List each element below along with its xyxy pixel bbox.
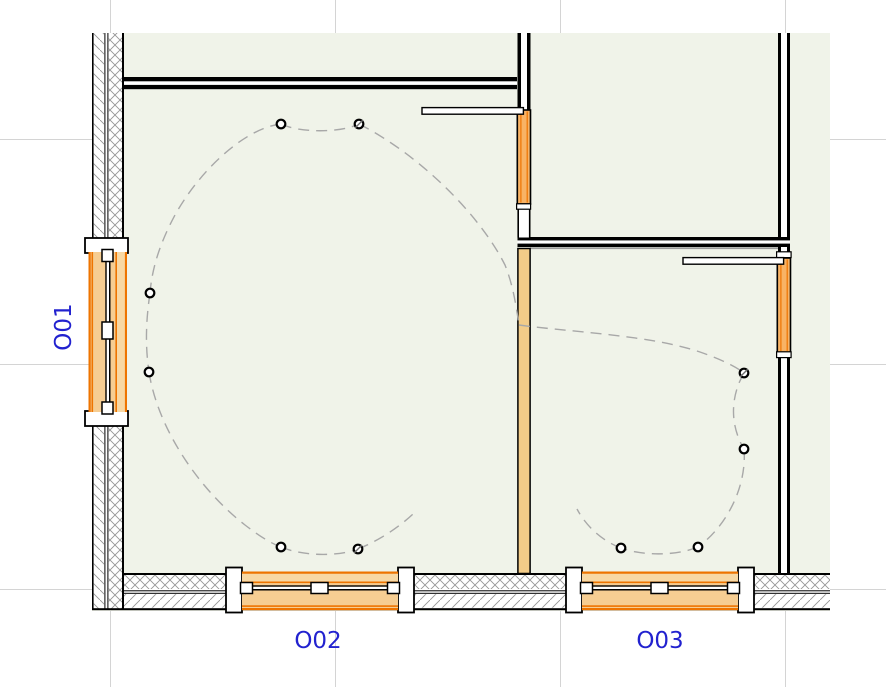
window-frame-handle (388, 583, 400, 594)
window-frame-handle (102, 250, 113, 262)
sliding-door-east[interactable] (777, 252, 792, 358)
window-frame-handle (651, 583, 668, 594)
light-fixture[interactable] (617, 544, 626, 553)
light-fixture[interactable] (277, 120, 286, 129)
sliding-door-north[interactable] (517, 110, 531, 209)
window-o03[interactable] (566, 568, 754, 613)
window-label-o02[interactable]: O02 (294, 628, 341, 654)
wall-east-upper[interactable] (778, 33, 790, 252)
window-label-o01[interactable]: O01 (51, 303, 77, 350)
light-fixture[interactable] (146, 289, 155, 298)
door-sill-notch (777, 252, 792, 258)
window-label-o03[interactable]: O03 (636, 628, 683, 654)
light-fixture[interactable] (145, 368, 154, 377)
light-fixture[interactable] (277, 543, 286, 552)
wall-stub-center[interactable] (517, 209, 530, 238)
window-frame-handle (581, 583, 593, 594)
window-jamb (738, 568, 754, 613)
window-frame-handle (102, 322, 113, 339)
window-o02[interactable] (226, 568, 414, 613)
door-sill-notch (777, 352, 792, 358)
window-jamb (226, 568, 242, 613)
floor-plan-canvas[interactable]: O01 O02 O03 (0, 0, 886, 687)
door-leaf-north[interactable] (422, 108, 523, 115)
wall-shadow-line (530, 247, 778, 249)
wall-east-lower[interactable] (778, 357, 790, 573)
window-frame-handle (241, 583, 253, 594)
interior-wall-top-center[interactable] (518, 33, 531, 110)
door-leaf-east[interactable] (683, 258, 784, 265)
floor-plan-drawing[interactable]: O01 O02 O03 (0, 0, 886, 687)
door-sill-notch (517, 204, 531, 209)
window-frame-handle (102, 402, 113, 414)
window-jamb (566, 568, 582, 613)
light-fixture[interactable] (740, 445, 749, 454)
interior-wall-center[interactable] (518, 249, 530, 574)
window-frame-handle (311, 583, 328, 594)
window-frame-handle (728, 583, 740, 594)
floor-slab (92, 33, 830, 611)
window-o01[interactable] (85, 238, 128, 426)
window-jamb (398, 568, 414, 613)
light-fixture[interactable] (694, 543, 703, 552)
interior-wall-north[interactable] (124, 77, 517, 89)
